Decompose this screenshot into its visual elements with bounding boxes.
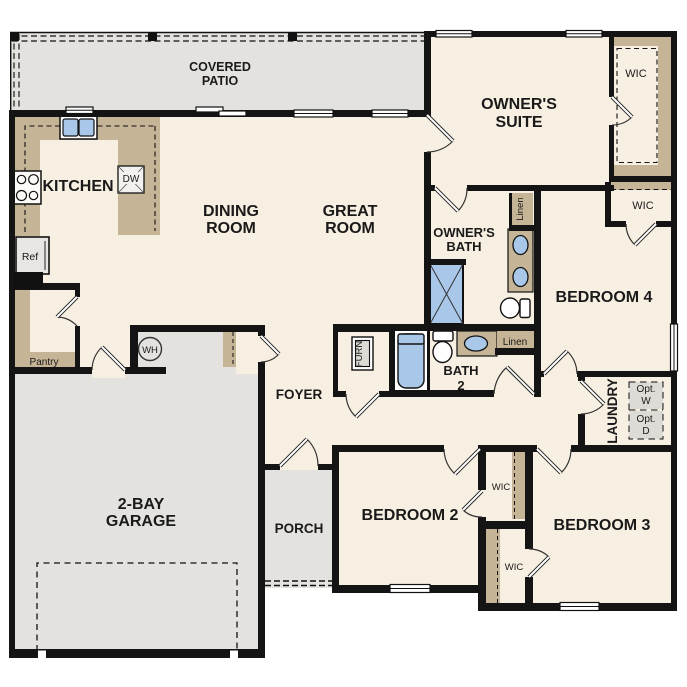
svg-text:ROOM: ROOM bbox=[206, 220, 256, 237]
svg-text:Ref: Ref bbox=[22, 251, 38, 263]
svg-text:WIC: WIC bbox=[505, 562, 524, 573]
svg-text:FOYER: FOYER bbox=[276, 387, 323, 402]
svg-text:D: D bbox=[642, 426, 649, 437]
svg-text:GARAGE: GARAGE bbox=[106, 513, 177, 530]
svg-text:BEDROOM 4: BEDROOM 4 bbox=[556, 289, 653, 306]
svg-text:W: W bbox=[641, 396, 651, 407]
svg-text:DW: DW bbox=[123, 174, 140, 185]
svg-text:LAUNDRY: LAUNDRY bbox=[605, 378, 620, 444]
svg-text:BATH: BATH bbox=[443, 363, 478, 378]
svg-text:ROOM: ROOM bbox=[325, 220, 375, 237]
svg-text:BATH: BATH bbox=[446, 239, 481, 254]
svg-text:PORCH: PORCH bbox=[275, 521, 324, 536]
svg-text:PATIO: PATIO bbox=[202, 74, 239, 88]
svg-text:Opt.: Opt. bbox=[637, 384, 656, 395]
svg-text:OWNER'S: OWNER'S bbox=[481, 96, 557, 113]
svg-text:WIC: WIC bbox=[492, 482, 511, 493]
svg-text:Linen: Linen bbox=[515, 197, 526, 220]
svg-text:WIC: WIC bbox=[632, 200, 653, 212]
svg-text:WIC: WIC bbox=[625, 68, 646, 80]
svg-text:GREAT: GREAT bbox=[323, 203, 378, 220]
svg-text:2-BAY: 2-BAY bbox=[118, 496, 165, 513]
svg-text:SUITE: SUITE bbox=[495, 114, 542, 131]
svg-text:Linen: Linen bbox=[503, 337, 527, 348]
svg-text:Opt.: Opt. bbox=[637, 414, 656, 425]
svg-text:BEDROOM 2: BEDROOM 2 bbox=[362, 507, 459, 524]
svg-text:OWNER'S: OWNER'S bbox=[433, 225, 495, 240]
svg-text:WH: WH bbox=[142, 345, 158, 356]
svg-text:KITCHEN: KITCHEN bbox=[42, 178, 113, 195]
svg-text:COVERED: COVERED bbox=[189, 60, 251, 74]
svg-text:Pantry: Pantry bbox=[30, 357, 59, 368]
svg-text:BEDROOM 3: BEDROOM 3 bbox=[554, 517, 651, 534]
svg-text:DINING: DINING bbox=[203, 203, 259, 220]
svg-text:FURN: FURN bbox=[354, 341, 365, 368]
